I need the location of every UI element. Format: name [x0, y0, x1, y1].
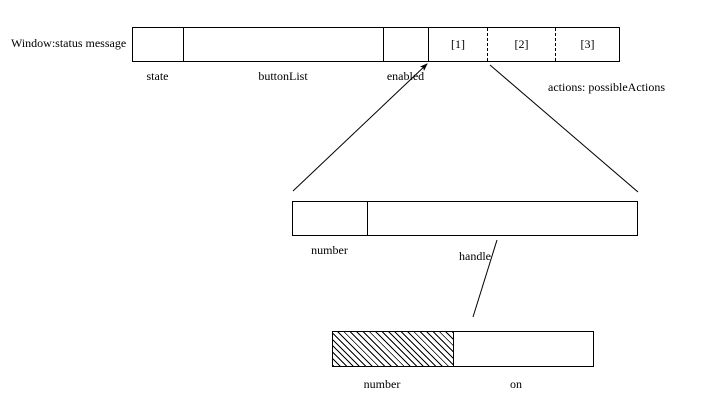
- state-label: state: [132, 69, 183, 83]
- button-handle-cell: [368, 202, 637, 235]
- window-record-bar: [1] [2] [3]: [132, 27, 620, 62]
- action-cell-2: [2]: [488, 28, 556, 61]
- handle-on-label: on: [466, 377, 566, 391]
- actions-label: actions: possibleActions: [548, 80, 665, 94]
- window-record-label: Window:status message: [11, 36, 126, 50]
- button-number-cell: [293, 202, 368, 235]
- expand-left-arrow-line: [293, 64, 427, 191]
- button-handle-label: handle: [440, 249, 510, 263]
- action-cell-3: [3]: [556, 28, 619, 61]
- buttonlist-label: buttonList: [183, 69, 383, 83]
- handle-number-label: number: [332, 377, 432, 391]
- handle-on-cell: [454, 332, 593, 366]
- slot-diagram: Window:status message [1] [2] [3] state …: [0, 0, 711, 401]
- button-record-bar: [292, 201, 638, 236]
- handle-record-bar: [332, 331, 594, 367]
- enabled-label: enabled: [383, 69, 428, 83]
- handle-number-cell: [333, 332, 454, 366]
- action-cell-1: [1]: [429, 28, 488, 61]
- enabled-cell: [384, 28, 429, 61]
- state-cell: [133, 28, 184, 61]
- button-number-label: number: [292, 243, 367, 257]
- buttonlist-cell: [184, 28, 384, 61]
